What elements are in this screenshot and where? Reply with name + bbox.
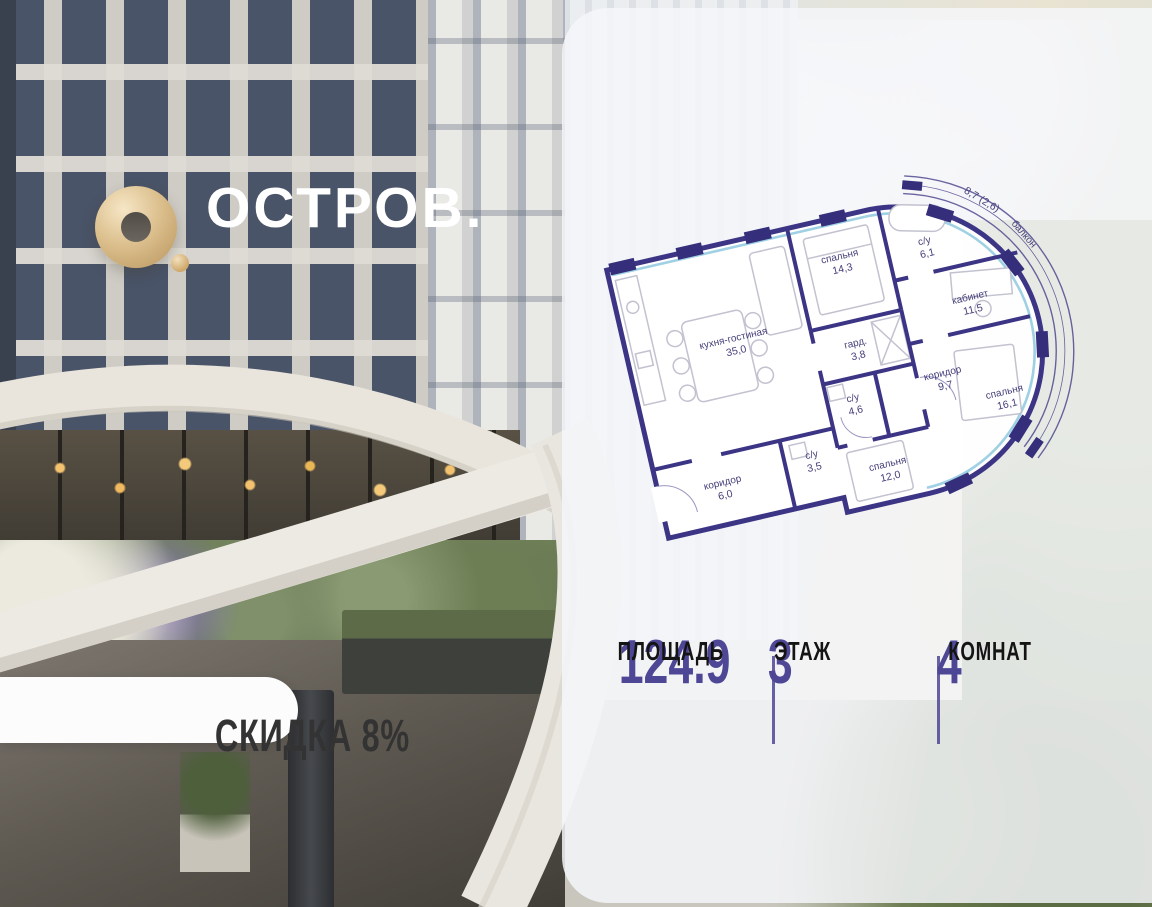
discount-badge: СКИДКА 8% bbox=[0, 677, 298, 743]
brand-logo: ОСТРОВ. bbox=[0, 0, 565, 300]
stat-area-label: ПЛОЩАДЬ bbox=[618, 636, 724, 666]
logo-wordmark: ОСТРОВ. bbox=[206, 178, 546, 238]
stat-rooms-label: КОМНАТ bbox=[948, 636, 1031, 666]
stat-floor-label: ЭТАЖ bbox=[774, 636, 831, 666]
logo-dot-icon bbox=[171, 254, 189, 272]
discount-label: СКИДКА 8% bbox=[215, 710, 410, 762]
stat-area: 124.9 ПЛОЩАДЬ bbox=[597, 628, 777, 768]
logo-o-icon bbox=[95, 186, 177, 268]
apartment-stats: 124.9 ПЛОЩАДЬ 3 ЭТАЖ 4 КОМНАТ bbox=[562, 628, 1152, 768]
stat-rooms: 4 КОМНАТ bbox=[932, 628, 1112, 768]
logo-o-hole bbox=[121, 212, 151, 242]
listing-card: ОСТРОВ. bbox=[0, 0, 1152, 907]
balcony-label: балкон bbox=[1009, 218, 1039, 250]
stat-floor: 3 ЭТАЖ bbox=[763, 628, 943, 768]
